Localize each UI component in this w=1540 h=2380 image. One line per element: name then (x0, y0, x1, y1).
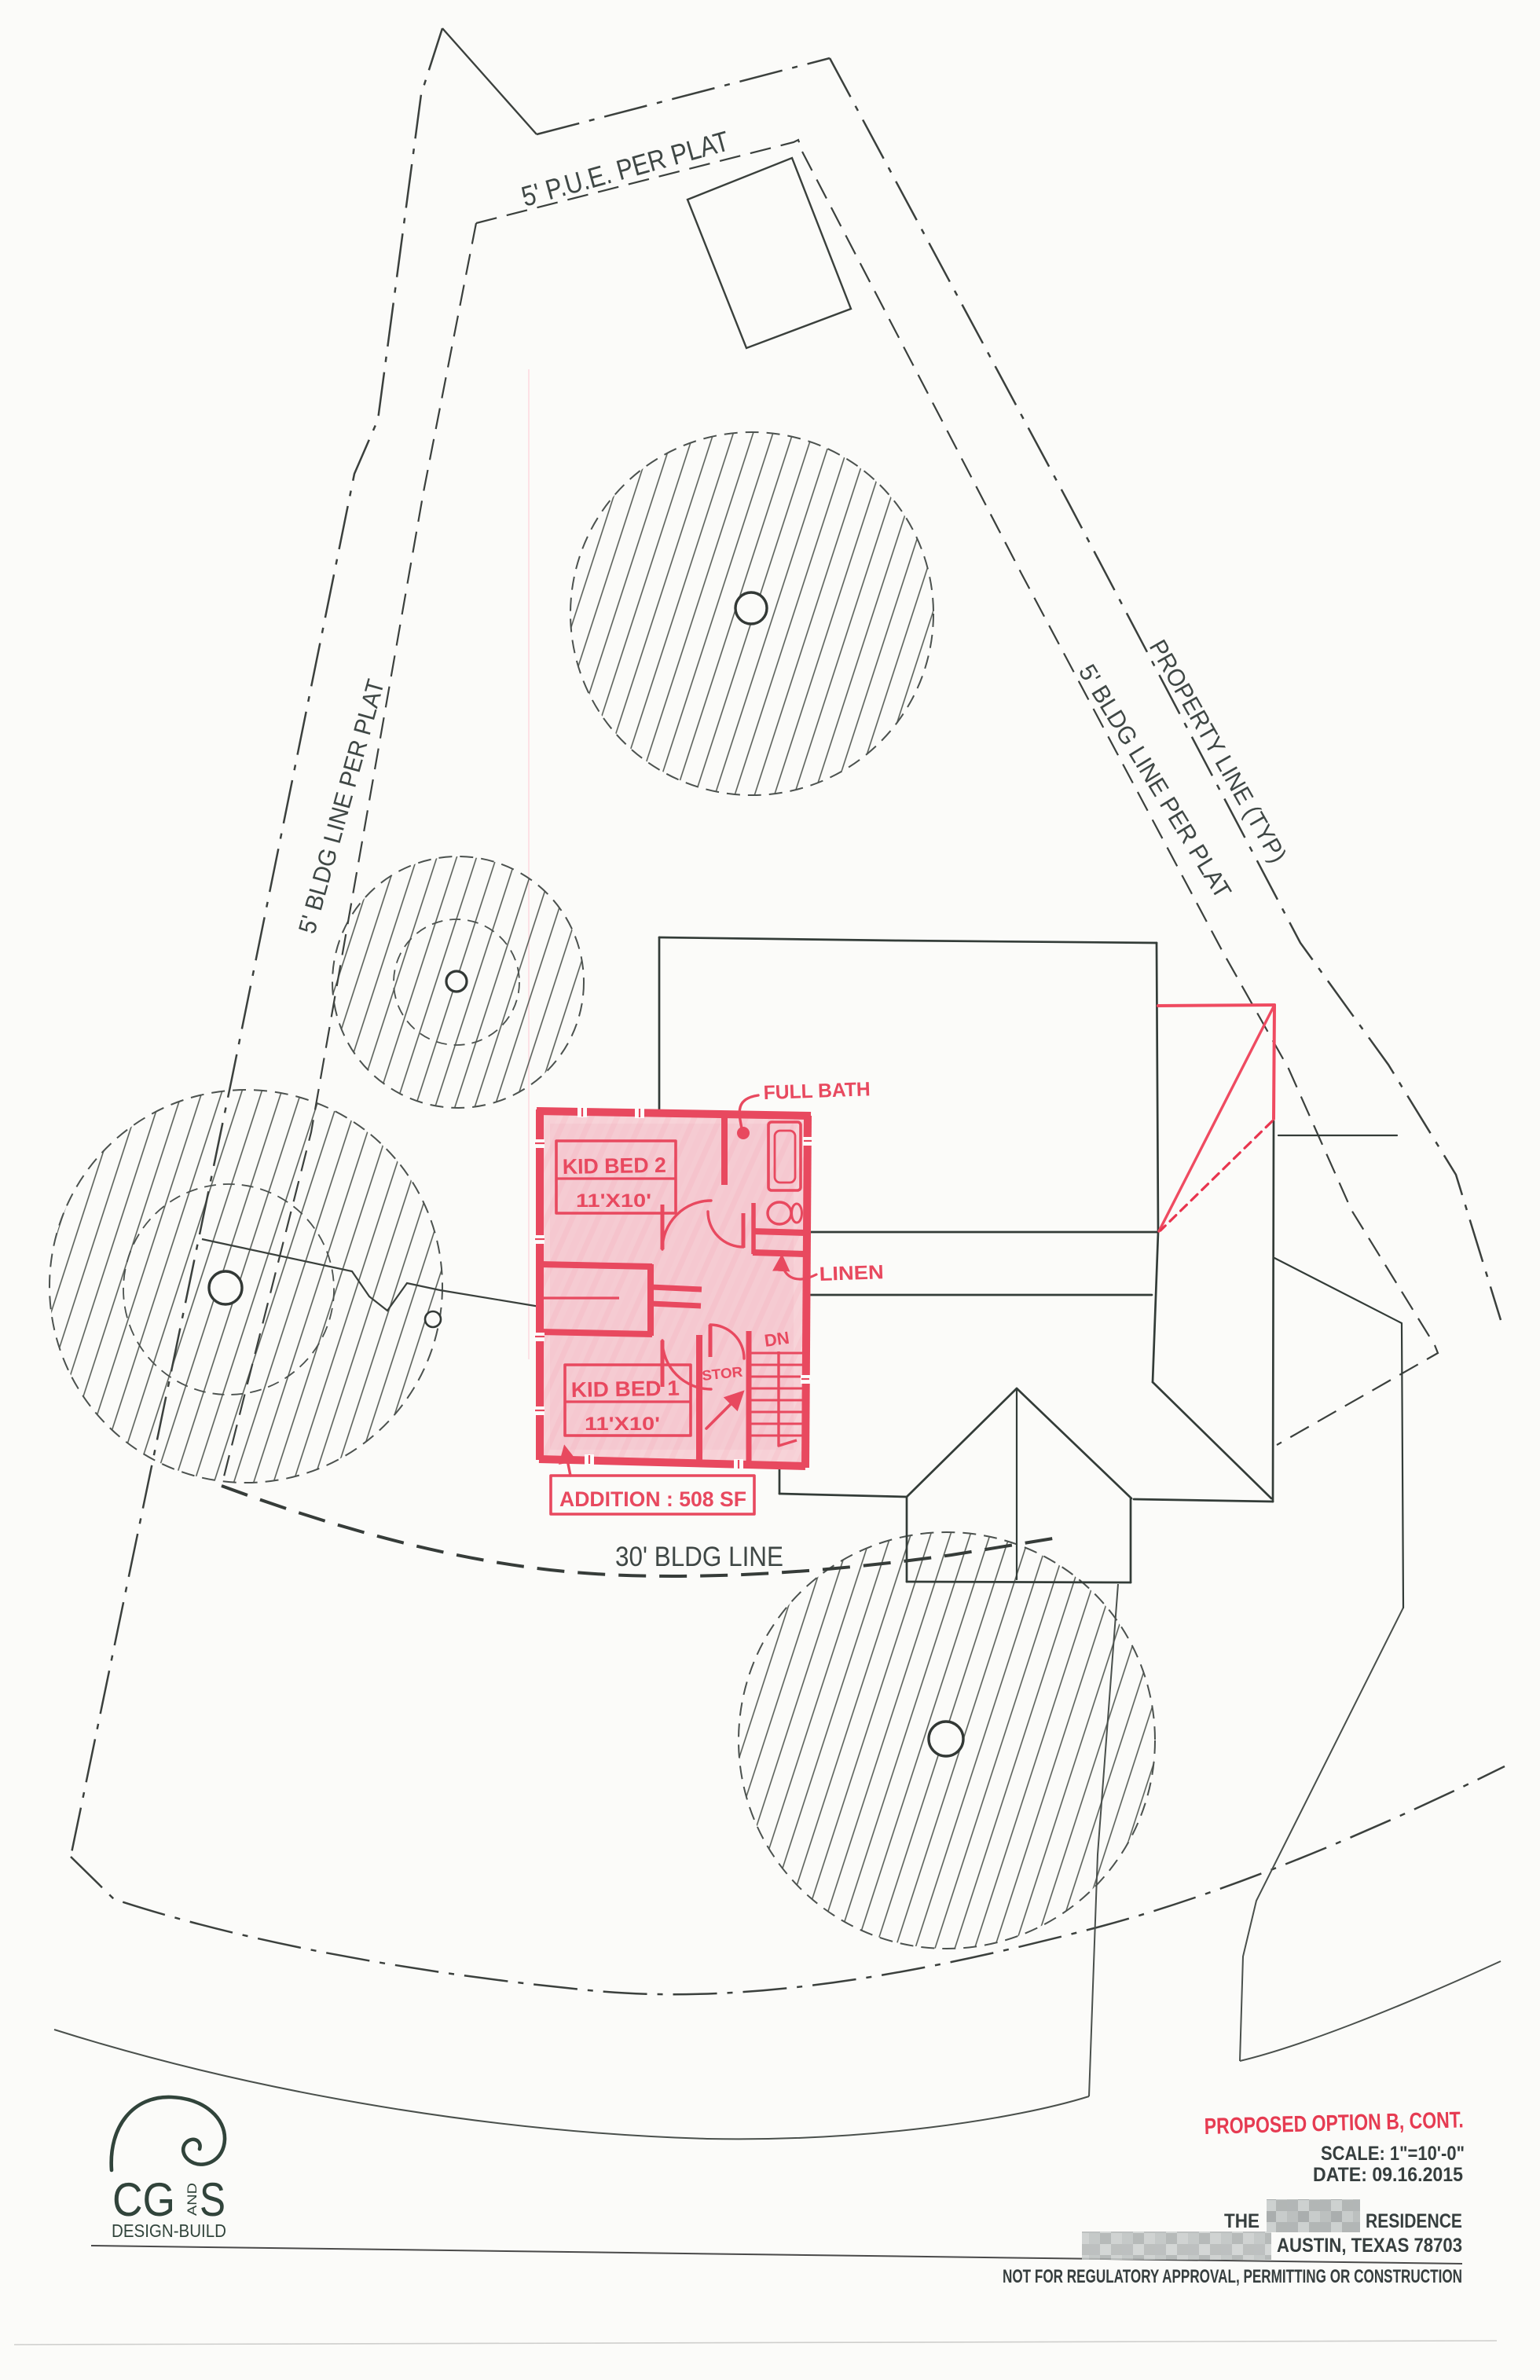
svg-text:SCALE: 1"=10'-0": SCALE: 1"=10'-0" (1321, 2143, 1465, 2165)
svg-text:CG: CG (112, 2173, 175, 2226)
svg-text:NOT FOR REGULATORY APPROVAL, P: NOT FOR REGULATORY APPROVAL, PERMITTING … (1003, 2266, 1462, 2287)
svg-text:THE: THE (1224, 2210, 1259, 2232)
svg-text:11'X10': 11'X10' (585, 1414, 660, 1435)
svg-text:LINEN: LINEN (819, 1261, 884, 1285)
svg-text:DATE: 09.16.2015: DATE: 09.16.2015 (1313, 2164, 1463, 2186)
svg-text:AUSTIN, TEXAS 78703: AUSTIN, TEXAS 78703 (1277, 2235, 1462, 2257)
svg-text:DESIGN-BUILD: DESIGN-BUILD (112, 2220, 226, 2241)
svg-text:30' BLDG LINE: 30' BLDG LINE (615, 1542, 783, 1572)
svg-text:RESIDENCE: RESIDENCE (1366, 2210, 1462, 2232)
svg-text:AND: AND (185, 2183, 200, 2216)
svg-text:KID BED 2: KID BED 2 (563, 1153, 667, 1179)
svg-text:S: S (200, 2173, 225, 2226)
svg-text:11'X10': 11'X10' (576, 1190, 651, 1212)
svg-text:FULL BATH: FULL BATH (763, 1078, 871, 1104)
svg-text:KID BED 1: KID BED 1 (571, 1377, 680, 1402)
svg-text:ADDITION : 508 SF: ADDITION : 508 SF (559, 1487, 746, 1511)
svg-text:DN: DN (763, 1328, 790, 1351)
